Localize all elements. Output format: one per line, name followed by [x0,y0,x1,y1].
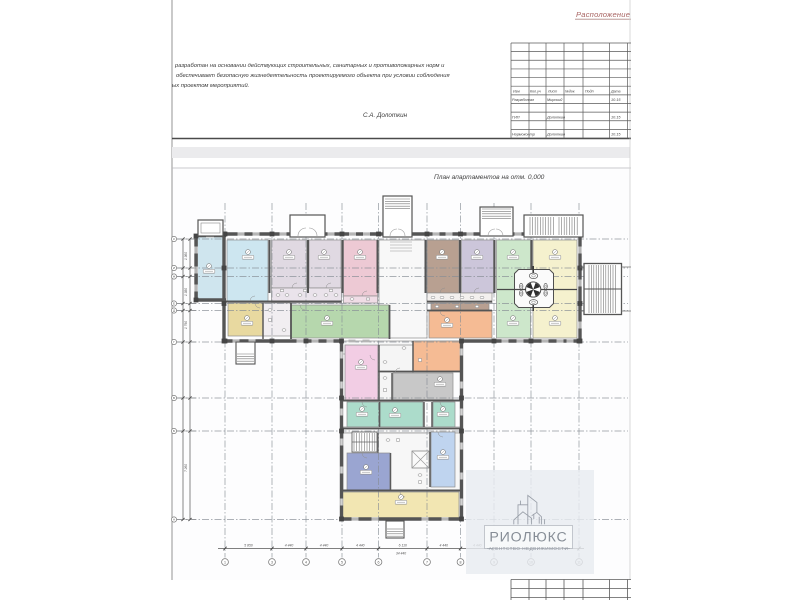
svg-text:1 380: 1 380 [184,288,188,296]
svg-text:1 360: 1 360 [184,252,188,260]
svg-text:Д: Д [173,309,175,313]
svg-text:Подп: Подп [585,89,594,93]
svg-text:3: 3 [271,560,273,564]
svg-text:Б: Б [173,429,175,433]
svg-text:5 850: 5 850 [244,543,253,547]
svg-text:6: 6 [378,560,380,564]
svg-text:5: 5 [341,560,343,564]
svg-text:Разработал: Разработал [512,98,535,102]
svg-text:Долоткин: Долоткин [546,115,566,119]
svg-text:Лист: Лист [547,89,557,93]
svg-text:Ж: Ж [173,275,176,279]
svg-text:В: В [173,396,175,400]
svg-text:разработан на основании действ: разработан на основании действующих стро… [174,62,445,69]
svg-text:Долоткин: Долоткин [546,133,566,137]
svg-text:7: 7 [426,560,428,564]
svg-text:С.А. Долоткин: С.А. Долоткин [363,112,408,119]
svg-text:К: К [173,237,175,241]
svg-text:7 260: 7 260 [184,464,188,472]
svg-text:Мирский: Мирский [547,98,563,102]
svg-text:Дата: Дата [610,89,620,93]
svg-text:План апартаментов на отм. 0,00: План апартаментов на отм. 0,000 [434,174,545,181]
svg-text:ГИП: ГИП [512,115,520,119]
svg-text:Расположение уч: Расположение уч [576,10,641,19]
svg-text:И: И [173,266,175,270]
svg-text:10.15: 10.15 [611,133,621,137]
svg-text:4 440: 4 440 [440,543,449,547]
svg-text:обеспечивает безопасную жизнед: обеспечивает безопасную жизнедеятельност… [176,73,450,79]
svg-text:А: А [173,518,175,522]
svg-text:ых проектом мероприятий.: ых проектом мероприятий. [172,82,249,89]
svg-text:Кол.уч: Кол.уч [530,89,541,93]
svg-text:1 790: 1 790 [184,321,188,329]
svg-text:6 110: 6 110 [399,543,407,547]
svg-text:1: 1 [224,560,226,564]
svg-text:Нормоконтр: Нормоконтр [512,133,535,137]
svg-text:4 440: 4 440 [356,543,365,547]
svg-text:10.15: 10.15 [611,115,621,119]
svg-text:№док: №док [565,89,575,93]
svg-text:Изм: Изм [513,89,520,93]
svg-text:4 440: 4 440 [320,543,329,547]
svg-text:АГЕНТСТВО НЕДВИЖИМОСТИ: АГЕНТСТВО НЕДВИЖИМОСТИ [489,546,569,551]
svg-text:4: 4 [305,560,307,564]
svg-text:Е: Е [173,302,175,306]
svg-text:34 440: 34 440 [396,552,406,556]
svg-text:4 440: 4 440 [285,543,294,547]
svg-text:РИОЛЮКС: РИОЛЮКС [489,530,567,546]
svg-text:8: 8 [460,560,462,564]
svg-text:10.15: 10.15 [611,98,621,102]
